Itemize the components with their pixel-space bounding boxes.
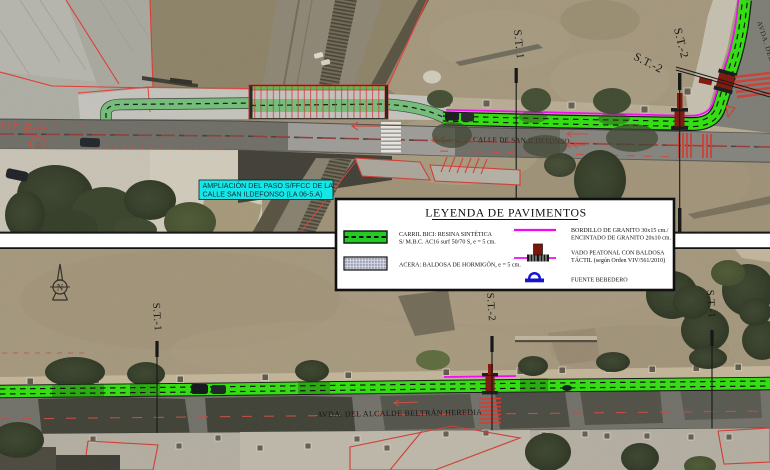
svg-text:VADO PEATONAL CON BALDOSA: VADO PEATONAL CON BALDOSA	[571, 251, 665, 257]
svg-text:FUENTE BEBEDERO: FUENTE BEBEDERO	[571, 278, 628, 284]
svg-text:BORDILLO DE GRANITO 30x15 cm./: BORDILLO DE GRANITO 30x15 cm./	[571, 228, 669, 234]
svg-text:LEYENDA DE PAVIMENTOS: LEYENDA DE PAVIMENTOS	[425, 206, 586, 220]
svg-text:CARRIL BICI: RESINA SINTÉTICA: CARRIL BICI: RESINA SINTÉTICA	[399, 230, 493, 238]
svg-text:ACERA: BALDOSA DE HORMIGÓN, e: ACERA: BALDOSA DE HORMIGÓN, e = 5 cm.	[399, 261, 521, 269]
svg-text:ENCINTADO DE GRANITO 20x10 cm.: ENCINTADO DE GRANITO 20x10 cm.	[571, 236, 671, 242]
svg-text:S/ M.B.C. AC16 surf 50/70 S, e: S/ M.B.C. AC16 surf 50/70 S, e = 5 cm.	[399, 239, 496, 246]
svg-text:TÁCTIL (según Orden VIV/561/20: TÁCTIL (según Orden VIV/561/2010)	[571, 256, 665, 264]
